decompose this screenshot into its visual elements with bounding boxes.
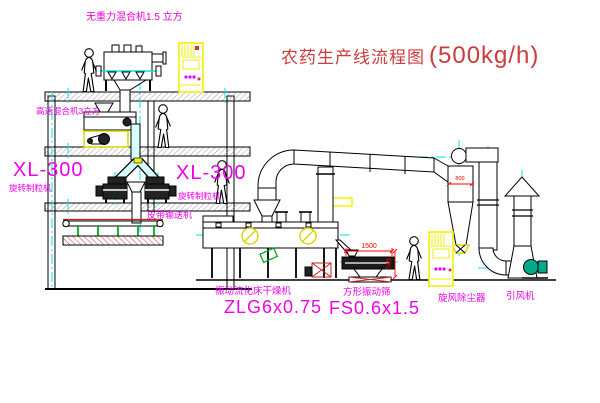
person-figure-ground (407, 237, 422, 280)
label-belt-conveyor: 皮带输送机 (147, 211, 192, 220)
label-granulator-left-name: 旋转制粒机 (9, 184, 52, 193)
label-granulator-right-name: 旋转制粒机 (178, 192, 221, 201)
title-text: 农药生产线流程图 (281, 43, 425, 68)
label-cyclone: 旋风除尘器 (438, 294, 486, 304)
label-screen-model: FS0.6x1.5 (329, 299, 420, 317)
granulator-left-machine (96, 177, 127, 203)
drawing-title: 农药生产线流程图 (500kg/h) (281, 42, 539, 70)
dim-screen-side: 745 (386, 258, 393, 270)
belt-conveyor-machine (63, 220, 163, 246)
label-high-speed-mixer: 高速混合机3立方 (36, 107, 100, 116)
granulator-right-machine (145, 177, 176, 203)
label-gravity-free-mixer: 无重力混合机1.5 立方 (86, 13, 183, 23)
label-screen-name: 方形振动筛 (343, 288, 391, 298)
person-figure-roof (82, 49, 97, 92)
label-dryer-model: ZLG6x0.75 (224, 298, 322, 316)
dim-screen-length: 1500 (361, 243, 377, 250)
label-fan: 引风机 (506, 292, 535, 302)
gravity-free-mixer (96, 45, 166, 112)
label-granulator-right-model: XL-300 (176, 163, 247, 183)
title-capacity: (500kg/h) (429, 42, 539, 70)
control-cabinet-cyclone (429, 232, 453, 286)
label-dryer-name: 振动流化床干燥机 (215, 287, 291, 297)
person-figure-floor2 (156, 105, 171, 148)
dryer-motor (312, 263, 331, 277)
label-granulator-left-model: XL-300 (13, 160, 84, 180)
dim-cyclone: 800 (455, 176, 464, 182)
control-cabinet-top (179, 43, 203, 92)
cad-flow-diagram: 1500 745 800 (0, 0, 600, 403)
